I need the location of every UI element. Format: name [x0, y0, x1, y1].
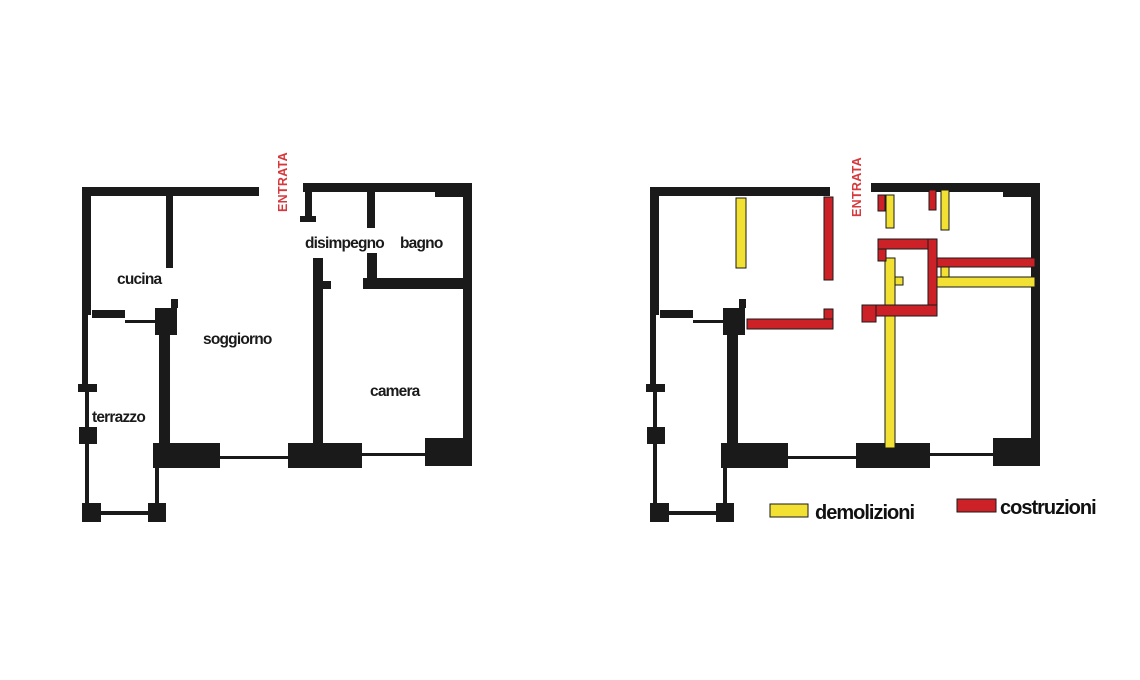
- wall-segment: [1031, 183, 1040, 466]
- plans-canvas: cucina soggiorno terrazzo disimpegno bag…: [0, 0, 1140, 680]
- demolition-segment: [941, 190, 949, 230]
- kitchen-partition-wall: [166, 196, 173, 268]
- wall-segment: [323, 281, 331, 289]
- construction-segment: [862, 305, 876, 322]
- wall-segment: [367, 192, 375, 228]
- legend-swatch-costruzioni: [957, 499, 996, 512]
- wall-segment: [739, 299, 746, 308]
- construction-segment: [824, 309, 833, 319]
- entrance-label-left: ENTRATA: [276, 152, 290, 212]
- wall-segment: [660, 310, 693, 318]
- wall-segment: [367, 253, 377, 281]
- wall-segment: [92, 310, 125, 318]
- window-line: [220, 456, 288, 459]
- construction-segment: [878, 195, 885, 211]
- room-label-cucina: cucina: [117, 271, 162, 288]
- wall-segment: [650, 315, 656, 392]
- terrace-post: [148, 503, 166, 522]
- wall-pier: [993, 438, 1036, 466]
- terrace-rail: [101, 511, 148, 515]
- terrace-post: [78, 384, 97, 392]
- wall-pier: [288, 443, 362, 468]
- wall-segment: [171, 299, 178, 308]
- door-sill-line: [693, 320, 723, 323]
- wall-segment: [1003, 192, 1031, 197]
- construction-segment: [878, 239, 936, 249]
- terrace-rail: [669, 511, 716, 515]
- terrace-post: [716, 503, 734, 522]
- wall-segment: [82, 315, 88, 392]
- room-label-bagno: bagno: [400, 235, 443, 252]
- wall-segment: [650, 187, 830, 196]
- wall-pier: [721, 443, 788, 468]
- construction-segment: [824, 197, 833, 280]
- room-label-terrazzo: terrazzo: [92, 409, 145, 426]
- door-sill-line: [125, 320, 155, 323]
- construction-segment: [929, 190, 936, 210]
- construction-segment: [747, 319, 833, 329]
- room-label-disimpegno: disimpegno: [305, 235, 384, 252]
- entrance-label-right: ENTRATA: [850, 157, 864, 217]
- legend-label-costruzioni: costruzioni: [1000, 497, 1096, 519]
- construction-segment: [928, 239, 937, 312]
- left-floor-plan: cucina soggiorno terrazzo disimpegno bag…: [78, 152, 472, 522]
- room-label-camera: camera: [370, 383, 421, 400]
- wall-segment: [650, 187, 659, 315]
- terrace-post: [650, 503, 669, 522]
- window-line: [788, 456, 856, 459]
- demolition-segment: [886, 195, 894, 228]
- window-line: [930, 453, 993, 456]
- terrace-rail: [155, 468, 159, 505]
- terrace-rail: [653, 390, 657, 505]
- wall-segment: [871, 183, 1040, 192]
- terrace-post: [646, 384, 665, 392]
- wall-segment: [155, 308, 177, 335]
- wall-segment: [82, 187, 91, 315]
- window-line: [362, 453, 425, 456]
- construction-segment: [876, 305, 937, 316]
- entrance-jamb-wall: [300, 216, 316, 222]
- entrance-jamb-wall: [305, 192, 312, 218]
- floor-plan-comparison: cucina soggiorno terrazzo disimpegno bag…: [0, 0, 1140, 680]
- right-floor-plan: ENTRATA: [646, 157, 1040, 522]
- construction-segment: [878, 249, 886, 261]
- wall-segment: [82, 187, 259, 196]
- bedroom-partition-wall: [313, 258, 323, 443]
- room-label-soggiorno: soggiorno: [203, 331, 272, 348]
- wall-segment: [723, 308, 745, 335]
- demolition-segment: [935, 277, 1035, 287]
- terrace-post: [647, 427, 665, 444]
- terrace-post: [79, 427, 97, 444]
- wall-pier: [153, 443, 220, 468]
- legend-swatch-demolizioni: [770, 504, 808, 517]
- wall-segment: [435, 192, 463, 197]
- wall-segment: [727, 335, 738, 443]
- wall-segment: [159, 335, 170, 443]
- demolition-segment: [736, 198, 746, 268]
- legend: demolizioni costruzioni: [770, 497, 1096, 524]
- legend-label-demolizioni: demolizioni: [815, 502, 914, 524]
- wall-segment: [463, 183, 472, 466]
- terrace-rail: [723, 468, 727, 505]
- wall-pier: [425, 438, 468, 466]
- terrace-post: [82, 503, 101, 522]
- construction-segment: [937, 258, 1035, 267]
- wall-segment: [303, 183, 472, 192]
- bathroom-wall: [363, 278, 463, 289]
- demolition-segment: [895, 277, 903, 285]
- terrace-rail: [85, 390, 89, 505]
- demolition-segment: [885, 258, 895, 448]
